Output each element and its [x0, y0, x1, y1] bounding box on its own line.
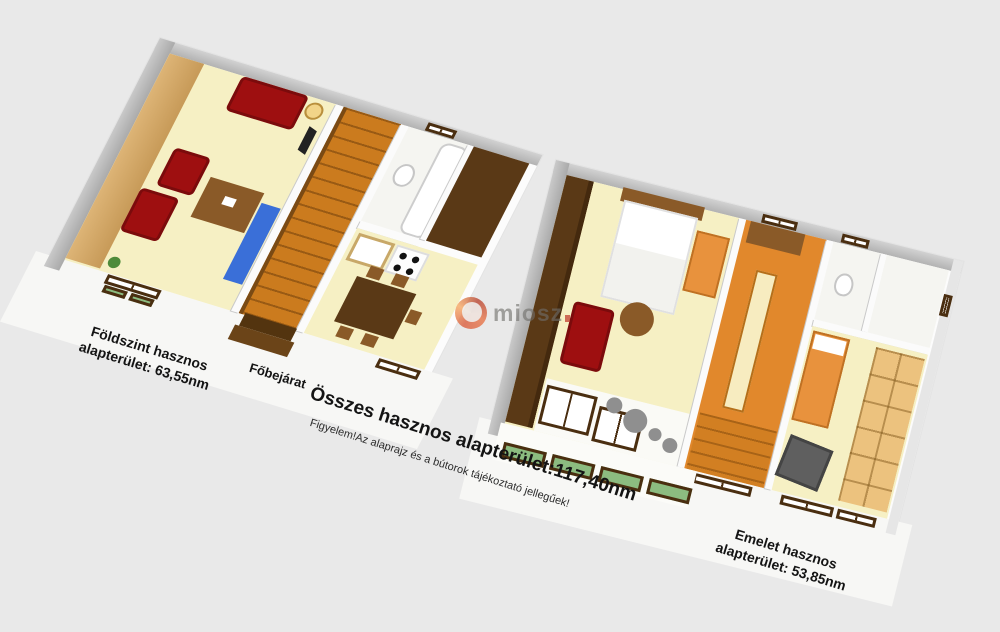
watermark: miosz — [455, 297, 570, 329]
miosz-logo-icon — [455, 297, 487, 329]
watermark-text: miosz — [493, 300, 563, 327]
watermark-accent — [565, 315, 570, 322]
floorplan-render: miosz Földszint hasznos alapterület: 63,… — [0, 0, 1000, 632]
stove-burners — [398, 252, 408, 260]
